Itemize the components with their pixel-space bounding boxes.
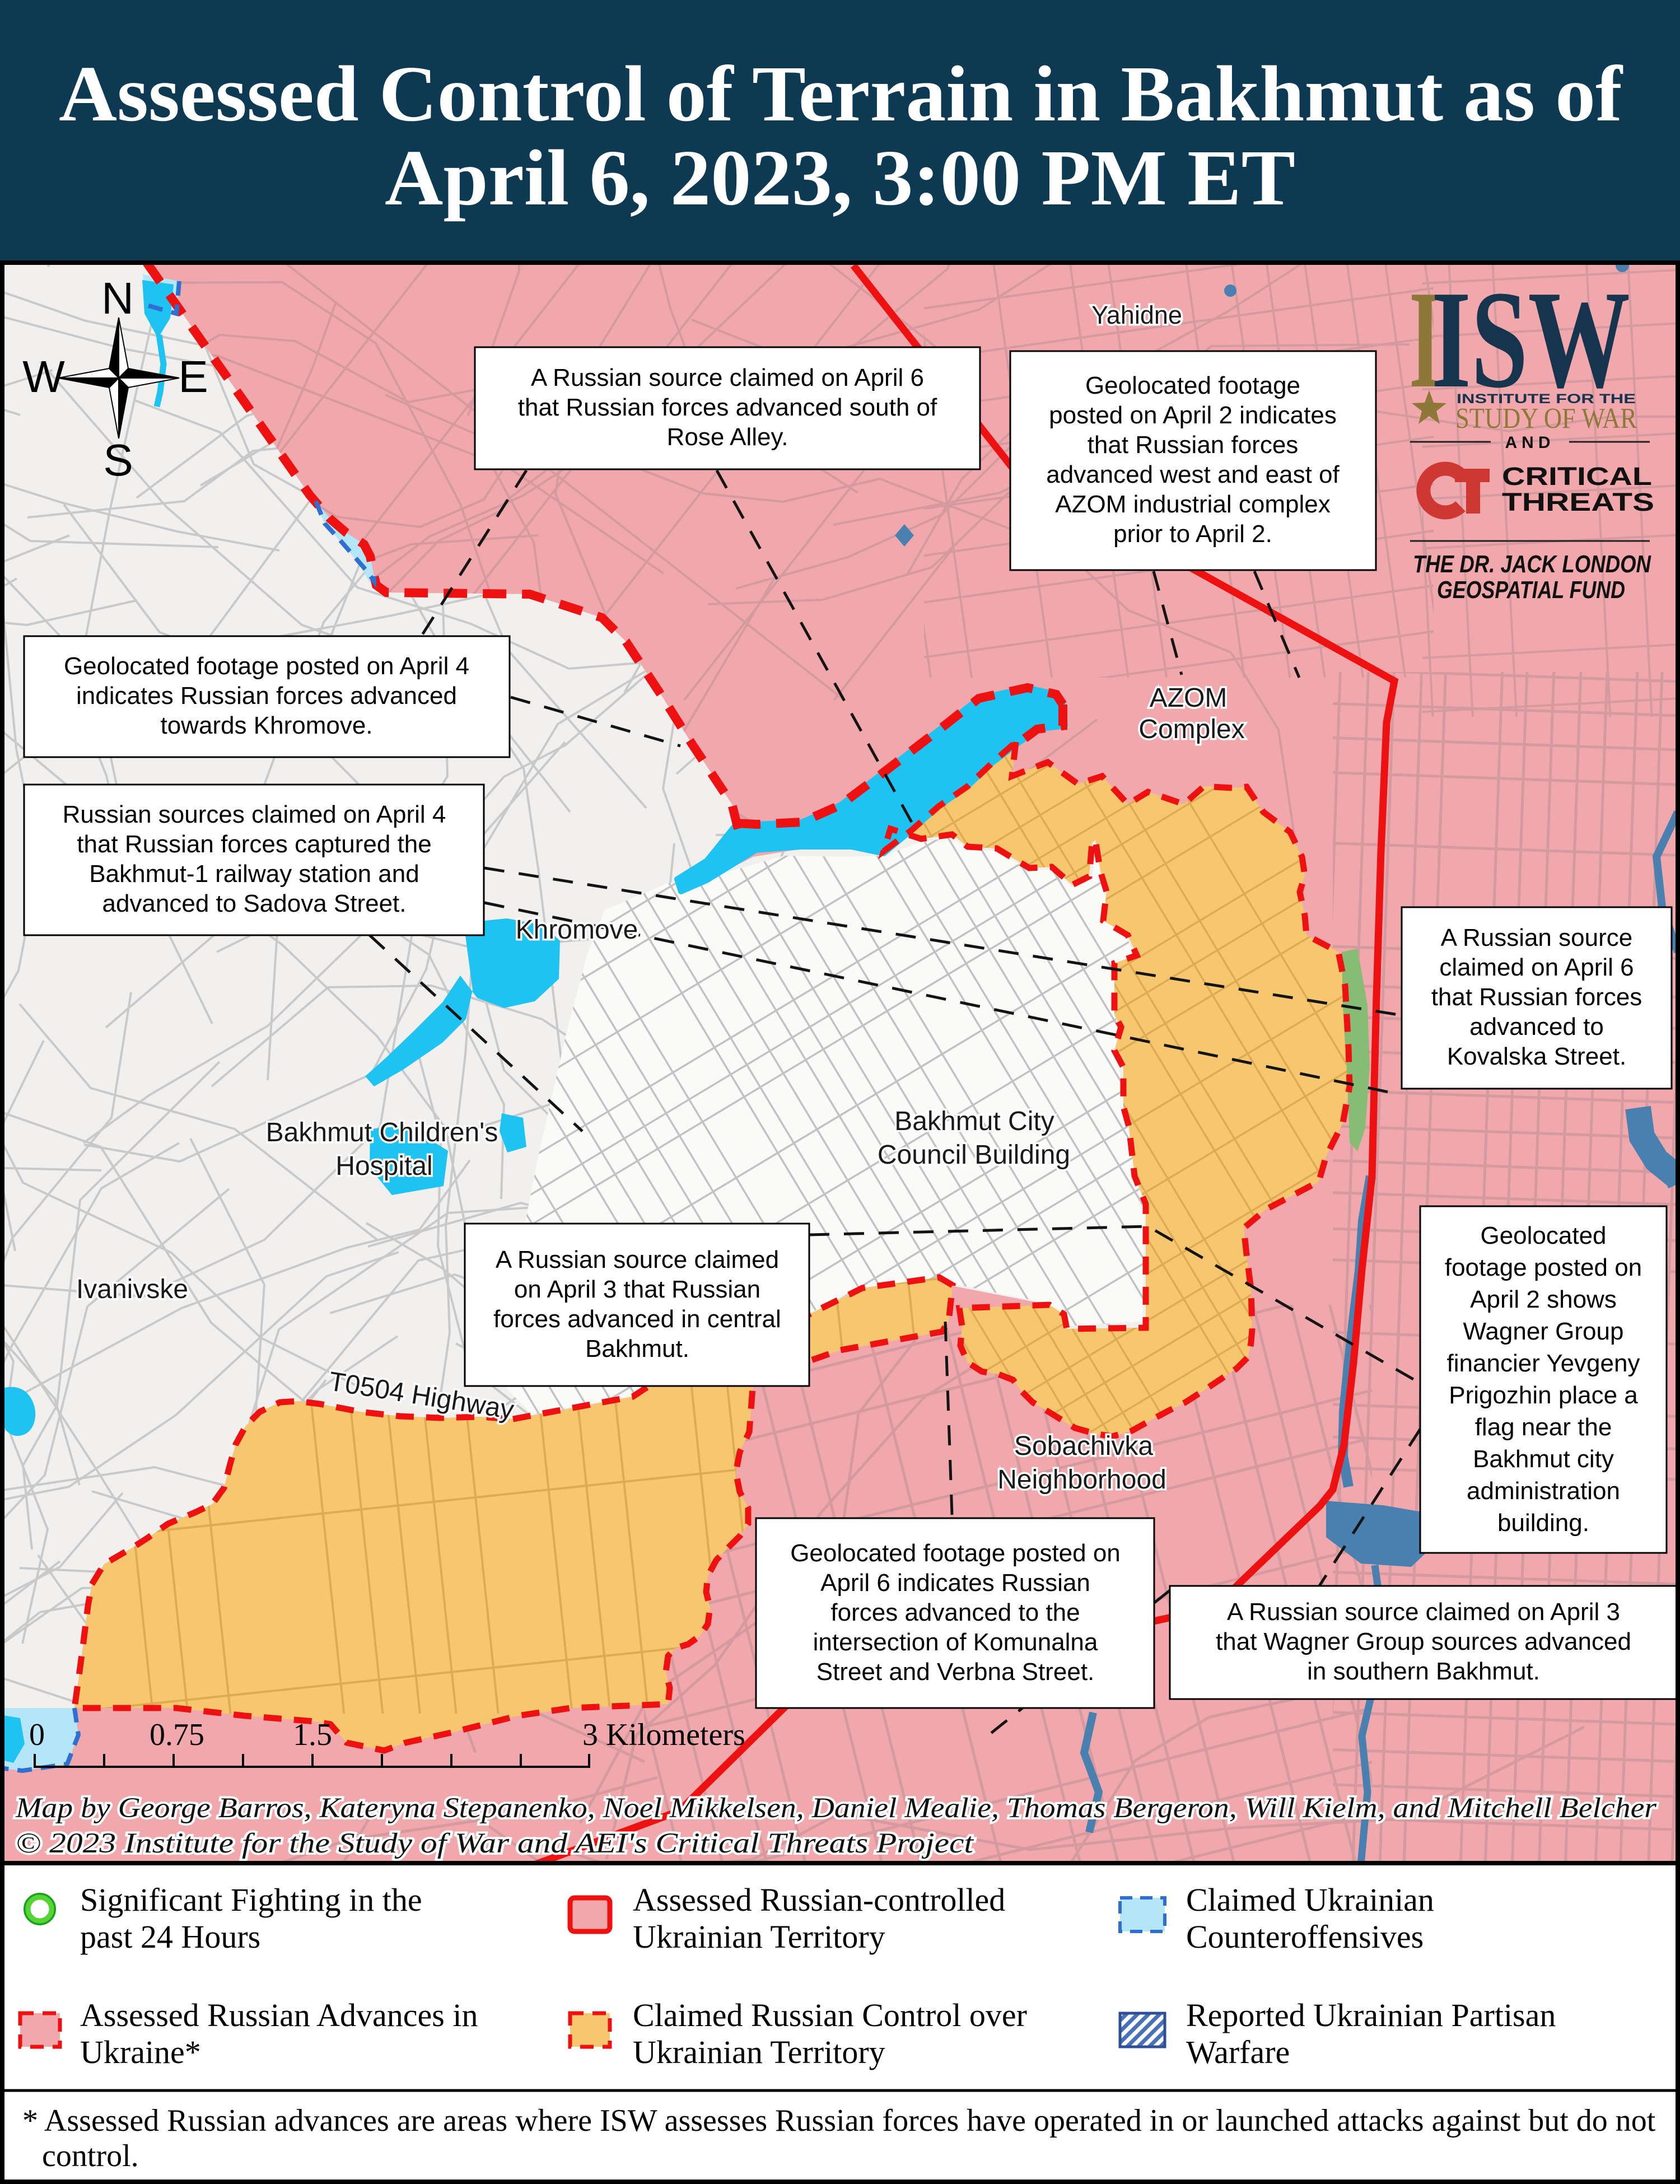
svg-text:Geolocated footage: Geolocated footage: [1085, 372, 1300, 399]
svg-text:THE DR. JACK LONDON: THE DR. JACK LONDON: [1413, 550, 1651, 578]
svg-text:N: N: [101, 273, 134, 323]
svg-text:Khromove: Khromove: [516, 915, 638, 945]
svg-text:Bakhmut Children's: Bakhmut Children's: [266, 1118, 498, 1147]
svg-text:AZOM: AZOM: [1150, 683, 1228, 713]
svg-text:Geolocated: Geolocated: [1480, 1222, 1606, 1249]
svg-text:claimed on April 6: claimed on April 6: [1439, 954, 1634, 981]
svg-text:Prigozhin place a: Prigozhin place a: [1449, 1382, 1638, 1409]
svg-text:AZOM industrial complex: AZOM industrial complex: [1055, 491, 1330, 518]
svg-text:Warfare: Warfare: [1186, 2034, 1290, 2070]
svg-text:A Russian source claimed on Ap: A Russian source claimed on April 6: [531, 364, 924, 391]
svg-text:Assessed Russian-controlled: Assessed Russian-controlled: [633, 1882, 1005, 1918]
svg-text:footage posted on: footage posted on: [1445, 1254, 1642, 1281]
svg-text:Russian sources claimed on Apr: Russian sources claimed on April 4: [63, 801, 446, 828]
svg-text:that Russian forces: that Russian forces: [1088, 431, 1299, 459]
svg-text:GEOSPATIAL FUND: GEOSPATIAL FUND: [1437, 576, 1625, 604]
svg-text:advanced west and east of: advanced west and east of: [1046, 461, 1340, 488]
svg-text:that Wagner Group sources adva: that Wagner Group sources advanced: [1216, 1628, 1631, 1655]
svg-text:prior to April 2.: prior to April 2.: [1113, 520, 1272, 548]
svg-text:Ukraine*: Ukraine*: [80, 2034, 201, 2070]
svg-text:Hospital: Hospital: [335, 1151, 432, 1181]
svg-text:A Russian source claimed: A Russian source claimed: [496, 1246, 779, 1273]
svg-text:on April 3 that Russian: on April 3 that Russian: [514, 1276, 760, 1303]
svg-text:that Russian forces captured t: that Russian forces captured the: [77, 830, 431, 858]
svg-text:that Russian forces: that Russian forces: [1431, 983, 1642, 1011]
svg-text:Street and Verbna Street.: Street and Verbna Street.: [816, 1658, 1095, 1686]
svg-text:S: S: [103, 435, 133, 485]
svg-text:in southern Bakhmut.: in southern Bakhmut.: [1307, 1658, 1540, 1685]
svg-text:financier Yevgeny: financier Yevgeny: [1447, 1350, 1640, 1377]
svg-text:Council Building: Council Building: [878, 1140, 1070, 1170]
svg-text:© 2023 Institute for the Study: © 2023 Institute for the Study of War an…: [16, 1828, 974, 1859]
svg-text:building.: building.: [1497, 1509, 1589, 1537]
svg-text:Complex: Complex: [1138, 715, 1244, 744]
svg-text:flag near the: flag near the: [1475, 1413, 1612, 1441]
svg-text:Counteroffensives: Counteroffensives: [1186, 1919, 1424, 1955]
svg-text:forces advanced to the: forces advanced to the: [830, 1599, 1080, 1626]
svg-text:Rose Alley.: Rose Alley.: [667, 423, 788, 451]
svg-text:0: 0: [29, 1718, 45, 1752]
svg-text:A Russian source claimed on Ap: A Russian source claimed on April 3: [1227, 1598, 1620, 1626]
svg-text:Geolocated footage posted on A: Geolocated footage posted on April 4: [64, 652, 469, 680]
svg-text:indicates Russian forces advan: indicates Russian forces advanced: [76, 682, 457, 710]
svg-text:Ukrainian Territory: Ukrainian Territory: [633, 2034, 885, 2070]
svg-text:Bakhmut City: Bakhmut City: [894, 1107, 1054, 1136]
svg-text:that Russian forces advanced s: that Russian forces advanced south of: [518, 394, 937, 421]
svg-text:April 6, 2023, 3:00 PM ET: April 6, 2023, 3:00 PM ET: [385, 133, 1295, 222]
svg-text:Claimed Ukrainian: Claimed Ukrainian: [1186, 1882, 1434, 1918]
svg-text:Geolocated footage posted on: Geolocated footage posted on: [790, 1539, 1121, 1567]
svg-text:forces advanced in central: forces advanced in central: [493, 1305, 781, 1333]
svg-text:AND: AND: [1505, 433, 1555, 452]
svg-text:administration: administration: [1467, 1477, 1620, 1505]
svg-text:past 24 Hours: past 24 Hours: [80, 1919, 260, 1955]
svg-text:towards Khromove.: towards Khromove.: [160, 712, 372, 739]
svg-text:advanced to: advanced to: [1469, 1013, 1604, 1040]
svg-text:Bakhmut.: Bakhmut.: [585, 1335, 689, 1362]
svg-text:April 6 indicates Russian: April 6 indicates Russian: [820, 1569, 1090, 1597]
svg-text:Claimed Russian Control over: Claimed Russian Control over: [633, 1997, 1027, 2033]
svg-text:0.75: 0.75: [150, 1718, 204, 1752]
svg-text:CRITICAL: CRITICAL: [1502, 462, 1652, 491]
svg-text:Yahidne: Yahidne: [1091, 301, 1182, 329]
svg-text:Significant Fighting in the: Significant Fighting in the: [80, 1882, 422, 1918]
svg-text:advanced to Sadova Street.: advanced to Sadova Street.: [102, 890, 406, 917]
svg-text:A Russian source: A Russian source: [1441, 924, 1632, 951]
svg-text:3 Kilometers: 3 Kilometers: [582, 1718, 745, 1752]
svg-text:STUDY OF WAR: STUDY OF WAR: [1455, 403, 1637, 435]
svg-text:intersection of Komunalna: intersection of Komunalna: [813, 1628, 1098, 1656]
svg-text:April 2 shows: April 2 shows: [1470, 1286, 1617, 1313]
svg-text:Ukrainian Territory: Ukrainian Territory: [633, 1919, 885, 1955]
svg-text:THREATS: THREATS: [1502, 488, 1654, 516]
svg-text:Bakhmut city: Bakhmut city: [1473, 1445, 1614, 1473]
svg-text:Assessed Russian Advances in: Assessed Russian Advances in: [80, 1997, 478, 2033]
svg-text:Ivanivske: Ivanivske: [76, 1275, 188, 1304]
svg-text:posted on April 2 indicates: posted on April 2 indicates: [1049, 402, 1337, 429]
svg-text:1.5: 1.5: [293, 1718, 332, 1752]
svg-text:E: E: [178, 352, 208, 402]
svg-text:* Assessed Russian advances ar: * Assessed Russian advances are areas wh…: [22, 2103, 1656, 2138]
svg-text:Neighborhood: Neighborhood: [997, 1465, 1166, 1495]
svg-text:Bakhmut-1 railway station and: Bakhmut-1 railway station and: [89, 860, 419, 888]
svg-text:W: W: [22, 352, 65, 402]
svg-text:Assessed Control of Terrain in: Assessed Control of Terrain in Bakhmut a…: [59, 49, 1623, 138]
svg-text:Wagner Group: Wagner Group: [1463, 1318, 1624, 1345]
svg-text:control.: control.: [42, 2139, 139, 2173]
svg-text:Sobachivka: Sobachivka: [1014, 1431, 1153, 1461]
svg-text:Reported Ukrainian Partisan: Reported Ukrainian Partisan: [1186, 1997, 1556, 2033]
svg-text:Map by George Barros, Kateryna: Map by George Barros, Kateryna Stepanenk…: [15, 1793, 1656, 1824]
svg-text:Kovalska Street.: Kovalska Street.: [1447, 1043, 1626, 1070]
